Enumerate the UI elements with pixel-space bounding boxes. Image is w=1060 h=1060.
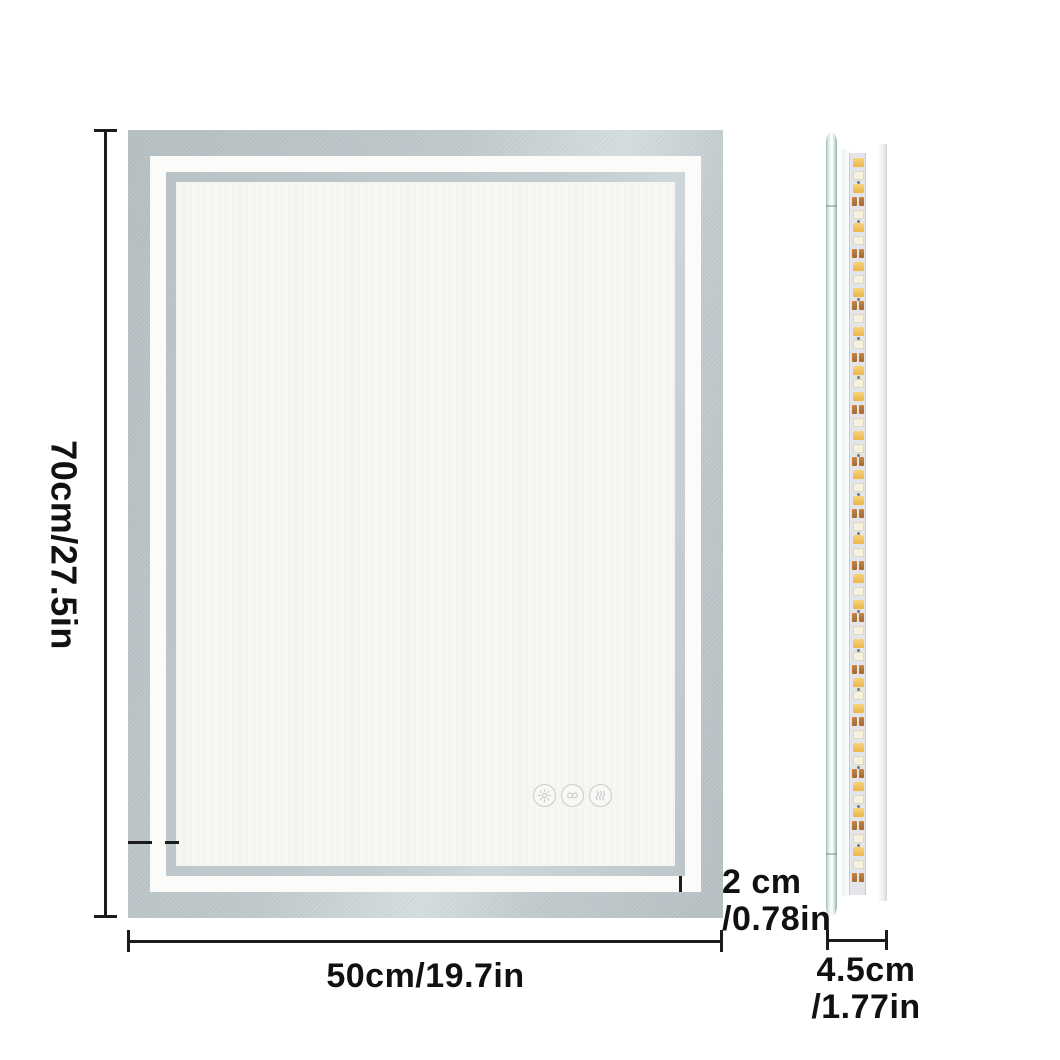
frame-dimension-label-line2: /0.78in <box>722 901 831 938</box>
led-chip <box>853 522 864 531</box>
mirror-dimension-diagram: 70cm/27.5in 50cm/19.7in 2 cm /0.78in 4.5… <box>0 0 1060 1060</box>
depth-dimension-line <box>827 939 888 942</box>
depth-dimension-label: 4.5cm /1.77in <box>791 952 941 1026</box>
led-chip <box>853 262 864 271</box>
led-channel <box>849 153 866 895</box>
led-chip <box>853 470 864 479</box>
width-dimension-line <box>128 940 723 943</box>
led-chip <box>853 392 864 401</box>
touch-controls <box>533 784 612 807</box>
led-chip <box>853 184 864 193</box>
height-dimension-label: 70cm/27.5in <box>46 440 83 650</box>
resistor-pair <box>852 821 864 830</box>
height-dimension-line <box>104 130 107 918</box>
resistor-pair <box>852 717 864 726</box>
mirror-surface <box>176 182 675 866</box>
mirror-glass-edge <box>826 133 837 916</box>
led-chip <box>853 236 864 245</box>
led-chip <box>853 795 864 804</box>
touch-control-defog <box>589 784 612 807</box>
led-chip <box>853 327 864 336</box>
led-chip <box>853 535 864 544</box>
frame-width-tick <box>679 876 682 892</box>
resistor-pair <box>852 405 864 414</box>
resistor-pair <box>852 509 864 518</box>
frame-dimension-label: 2 cm /0.78in <box>722 864 831 938</box>
resistor-pair <box>852 769 864 778</box>
led-chip <box>853 444 864 453</box>
led-chip <box>853 574 864 583</box>
led-chip <box>853 158 864 167</box>
width-dimension-label: 50cm/19.7in <box>128 958 723 995</box>
resistor-pair <box>852 301 864 310</box>
depth-dimension-label-line1: 4.5cm <box>791 952 941 989</box>
led-chip <box>853 691 864 700</box>
led-chip <box>853 808 864 817</box>
led-chip <box>853 587 864 596</box>
led-chip <box>853 496 864 505</box>
housing-front-rail <box>842 149 849 896</box>
led-chip <box>853 379 864 388</box>
led-chip <box>853 483 864 492</box>
led-chip <box>853 340 864 349</box>
sun-icon <box>537 788 552 803</box>
led-strip <box>850 155 865 893</box>
led-chip <box>853 834 864 843</box>
led-chip <box>853 548 864 557</box>
width-dimension-tick-left <box>127 930 130 952</box>
led-chip <box>853 652 864 661</box>
led-chip <box>853 171 864 180</box>
resistor-pair <box>852 561 864 570</box>
led-chip <box>853 314 864 323</box>
depth-dimension-tick-right <box>885 930 888 950</box>
led-chip <box>853 431 864 440</box>
height-dimension-tick-top <box>94 129 117 132</box>
led-chip <box>853 756 864 765</box>
led-chip <box>853 223 864 232</box>
housing-back-rail <box>866 144 887 901</box>
frame-width-tick <box>165 841 179 844</box>
led-chip <box>853 626 864 635</box>
led-chip <box>853 743 864 752</box>
led-chip <box>853 847 864 856</box>
defog-waves-icon <box>593 788 608 803</box>
resistor-pair <box>852 665 864 674</box>
resistor-pair <box>852 457 864 466</box>
led-chip <box>853 288 864 297</box>
led-chip <box>853 782 864 791</box>
resistor-pair <box>852 613 864 622</box>
led-chip <box>853 704 864 713</box>
led-chip <box>853 366 864 375</box>
resistor-pair <box>852 873 864 882</box>
touch-control-color-temperature <box>561 784 584 807</box>
depth-dimension-label-line2: /1.77in <box>791 989 941 1026</box>
glass-seam <box>826 205 837 207</box>
resistor-pair <box>852 353 864 362</box>
height-dimension-tick-bottom <box>94 915 117 918</box>
led-chip <box>853 860 864 869</box>
led-chip <box>853 730 864 739</box>
resistor-pair <box>852 197 864 206</box>
touch-control-brightness <box>533 784 556 807</box>
led-chip <box>853 600 864 609</box>
led-chip <box>853 418 864 427</box>
led-chip <box>853 639 864 648</box>
led-chip <box>853 275 864 284</box>
glass-seam <box>826 853 837 855</box>
frame-width-tick <box>128 841 152 844</box>
depth-dimension-tick-left <box>826 930 829 950</box>
resistor-pair <box>852 249 864 258</box>
led-chip <box>853 678 864 687</box>
mirror-housing-side-view <box>842 144 887 905</box>
mirror-front-view <box>128 130 723 918</box>
led-chip <box>853 210 864 219</box>
color-temp-icon <box>565 788 580 803</box>
frame-dimension-label-line1: 2 cm <box>722 864 831 901</box>
